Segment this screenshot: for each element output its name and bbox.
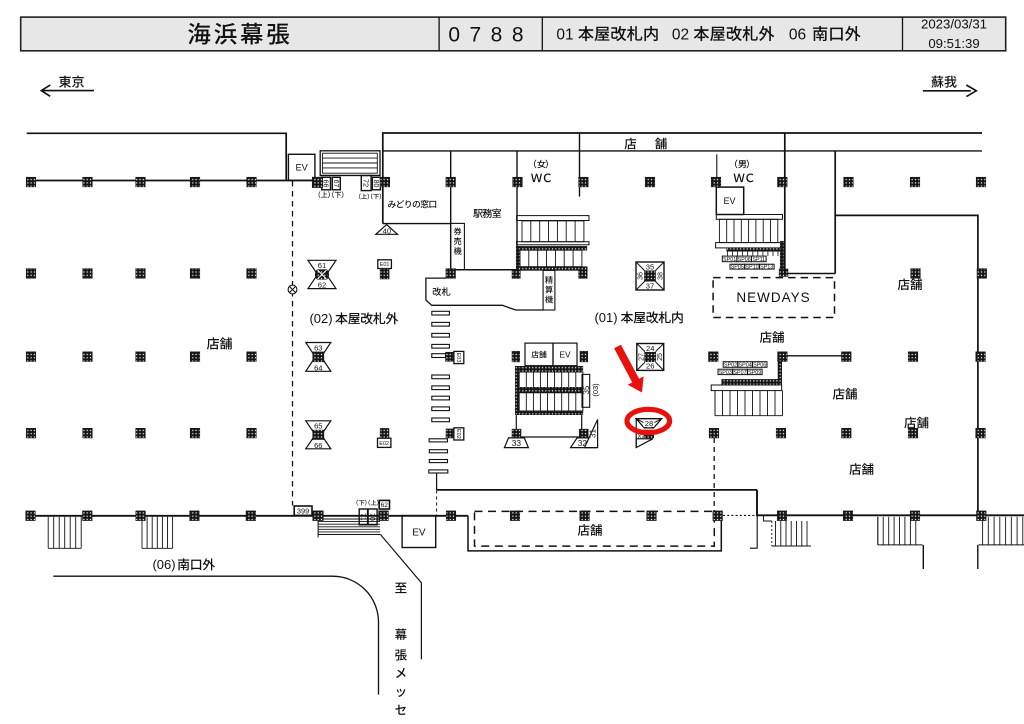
svg-text:(01): (01) <box>594 310 617 325</box>
svg-text:35: 35 <box>646 262 654 271</box>
svg-text:E02: E02 <box>455 429 461 439</box>
svg-text:SP06: SP06 <box>753 362 766 368</box>
svg-text:(03): (03) <box>591 383 600 397</box>
svg-text:E01: E01 <box>380 262 390 268</box>
svg-text:SP09: SP09 <box>748 370 761 376</box>
svg-text:SP03: SP03 <box>719 370 732 376</box>
svg-text:EV: EV <box>723 196 735 206</box>
svg-text:62: 62 <box>381 502 389 509</box>
svg-text:01: 01 <box>556 26 573 43</box>
svg-text:63: 63 <box>314 343 322 352</box>
svg-text:37: 37 <box>646 281 654 290</box>
svg-text:65: 65 <box>314 422 322 431</box>
svg-text:EV: EV <box>295 163 308 173</box>
svg-text:E03: E03 <box>455 353 461 363</box>
svg-text:(02): (02) <box>309 311 332 326</box>
svg-text:SP02: SP02 <box>724 362 737 368</box>
svg-text:26: 26 <box>646 362 654 371</box>
svg-text:06: 06 <box>789 26 806 43</box>
svg-text:62: 62 <box>318 281 326 290</box>
svg-text:35: 35 <box>582 385 591 394</box>
svg-text:SP07: SP07 <box>733 370 746 376</box>
svg-text:67: 67 <box>332 180 339 188</box>
svg-text:E02: E02 <box>379 441 389 447</box>
svg-text:SP13: SP13 <box>760 265 773 271</box>
svg-text:80: 80 <box>372 180 379 188</box>
svg-text:2023/03/31: 2023/03/31 <box>921 17 987 32</box>
svg-text:64: 64 <box>314 363 322 372</box>
svg-text:33: 33 <box>512 438 522 448</box>
svg-text:SP10: SP10 <box>745 265 758 271</box>
svg-text:70: 70 <box>368 513 375 521</box>
svg-text:0788: 0788 <box>448 23 533 46</box>
svg-text:02: 02 <box>672 26 689 43</box>
svg-text:66: 66 <box>314 441 322 450</box>
svg-text:40: 40 <box>383 227 391 236</box>
svg-text:71: 71 <box>359 513 366 521</box>
svg-text:27: 27 <box>638 353 645 361</box>
svg-text:38: 38 <box>657 272 664 280</box>
svg-text:NEWDAYS: NEWDAYS <box>736 290 810 305</box>
svg-text:SP08: SP08 <box>738 257 751 263</box>
svg-text:EV: EV <box>412 527 426 538</box>
svg-text:SP01: SP01 <box>723 257 736 263</box>
svg-text:31: 31 <box>588 429 597 438</box>
svg-text:36: 36 <box>638 272 645 280</box>
svg-text:SP05: SP05 <box>731 265 744 271</box>
svg-text:25: 25 <box>657 353 664 361</box>
svg-text:61: 61 <box>318 261 326 270</box>
svg-text:SP04: SP04 <box>739 362 752 368</box>
svg-text:EV: EV <box>559 349 571 359</box>
svg-text:399: 399 <box>297 507 309 516</box>
svg-text:28: 28 <box>645 419 653 428</box>
svg-text:09:51:39: 09:51:39 <box>928 36 979 51</box>
svg-text:24: 24 <box>646 344 654 353</box>
svg-text:72: 72 <box>362 179 371 187</box>
svg-text:SP11: SP11 <box>752 257 765 263</box>
svg-text:(06): (06) <box>152 557 175 572</box>
